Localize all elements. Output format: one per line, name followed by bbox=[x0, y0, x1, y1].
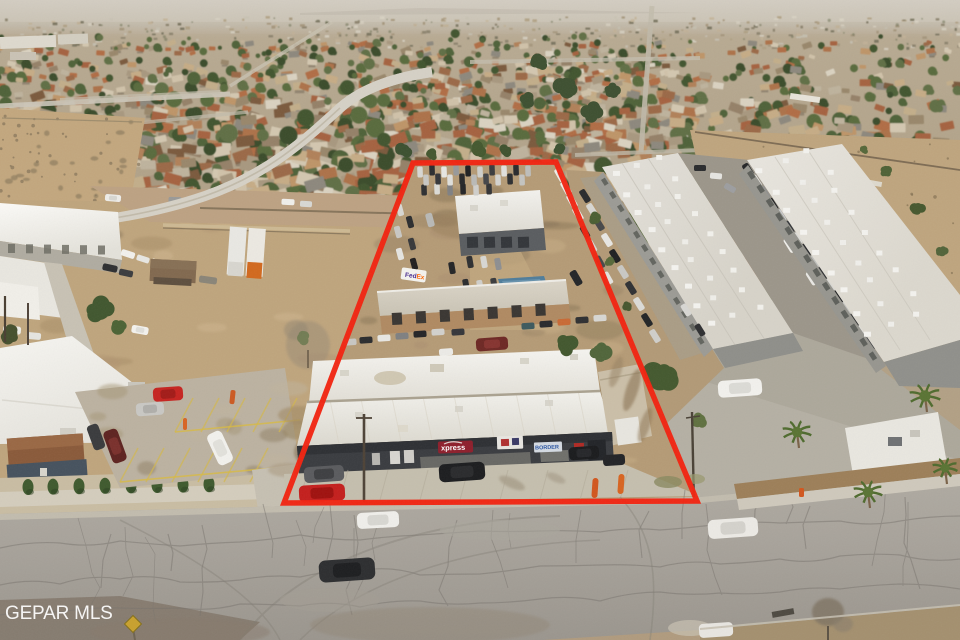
svg-text:GEPAR MLS: GEPAR MLS bbox=[5, 603, 113, 624]
